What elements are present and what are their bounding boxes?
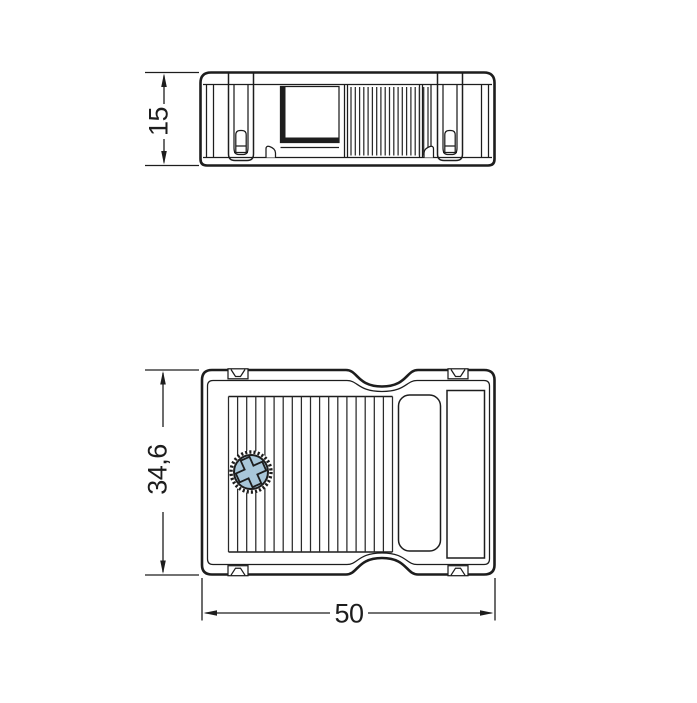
side-elevation-view: [201, 73, 495, 166]
latch-right: [438, 73, 463, 161]
foot-right: [424, 146, 434, 157]
drawing-page: 15: [0, 0, 697, 703]
phillips-screw-icon: [230, 451, 273, 494]
side-strip: [447, 391, 485, 559]
dimension-label-plan-width: 50: [334, 599, 363, 629]
arrow-up-icon: [161, 74, 167, 88]
dimension-width-plan: 50: [202, 578, 495, 629]
cable-window: [281, 87, 340, 148]
technical-drawing-canvas: 15: [0, 0, 697, 703]
arrow-left-icon: [204, 610, 218, 616]
marking-pad: [399, 395, 441, 551]
arrow-right-icon: [480, 610, 494, 616]
dimension-height-side: 15: [144, 73, 200, 166]
latch-left: [229, 73, 254, 161]
arrow-down-icon: [161, 151, 167, 165]
foot-left: [266, 146, 276, 157]
side-view-ribs: [351, 87, 428, 156]
dimension-label-plan-height: 34,6: [143, 444, 173, 495]
dimension-label-side-height: 15: [144, 107, 174, 136]
top-plan-view: [202, 369, 495, 576]
dimension-height-plan: 34,6: [143, 370, 200, 575]
arrow-down-icon: [160, 561, 166, 575]
arrow-up-icon: [160, 371, 166, 385]
